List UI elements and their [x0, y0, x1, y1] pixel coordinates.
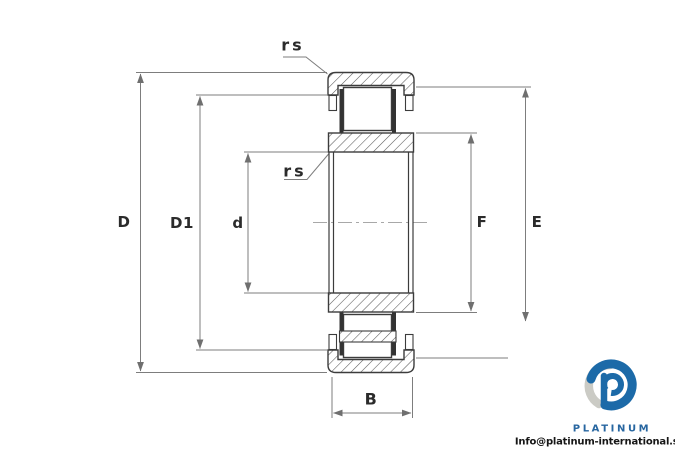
- dim-label-F: F: [477, 213, 488, 231]
- dim-label-rs-top: rs: [281, 36, 304, 55]
- inner-ring-flange-bottom: [329, 293, 414, 312]
- dim-label-D: D: [118, 213, 131, 231]
- cage-bridge: [340, 331, 397, 342]
- dim-label-E: E: [532, 213, 543, 231]
- cage-rail: [406, 335, 414, 350]
- platinum-logo-icon: [577, 354, 647, 418]
- cage-rail: [329, 96, 337, 111]
- dim-label-D1: D1: [170, 214, 194, 232]
- roller-top: [344, 88, 392, 131]
- bearing-drawing-svg: [0, 0, 675, 450]
- dim-label-rs-inner: rs: [283, 162, 306, 181]
- cage-rail: [406, 96, 414, 111]
- brand-name: PLATINUM: [573, 424, 651, 435]
- dim-label-B: B: [365, 390, 378, 409]
- cage-rail: [329, 335, 337, 350]
- dim-label-d: d: [232, 214, 243, 232]
- inner-ring-flange-top: [329, 133, 414, 152]
- bearing-technical-drawing: rs rs D D1 d F E B PLATINUM Info@platinu…: [0, 0, 675, 450]
- brand-email: Info@platinum-international.store: [515, 437, 675, 448]
